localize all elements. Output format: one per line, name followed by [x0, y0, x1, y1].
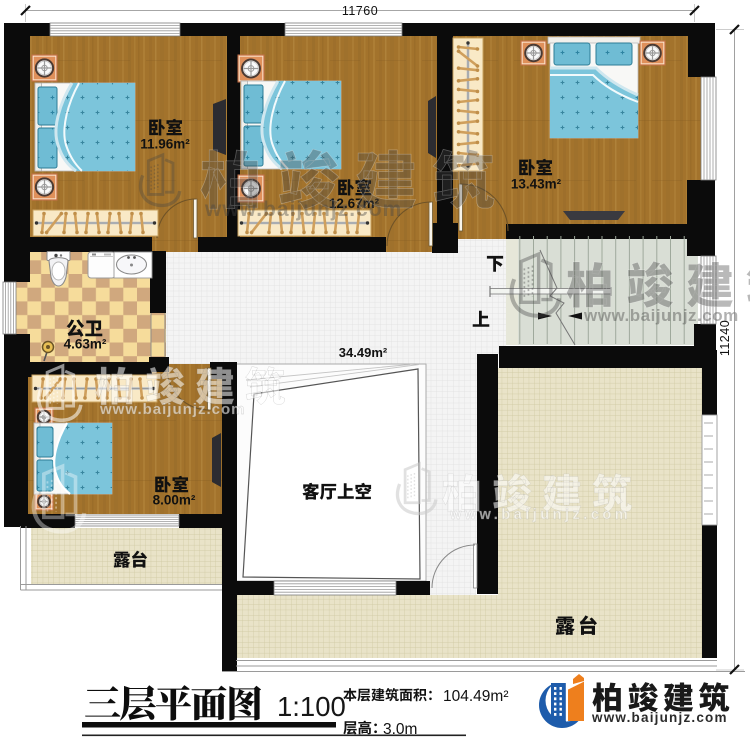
- svg-text:1:100: 1:100: [277, 691, 346, 722]
- svg-text:www.baijunjz.com: www.baijunjz.com: [591, 710, 728, 725]
- svg-text:www.baijunjz.com: www.baijunjz.com: [449, 507, 631, 523]
- svg-text:11760: 11760: [342, 4, 378, 18]
- svg-text:8.00m²: 8.00m²: [153, 493, 196, 508]
- svg-text:www.baijunjz.com: www.baijunjz.com: [99, 401, 245, 418]
- svg-text:www.baijunjz.com: www.baijunjz.com: [204, 198, 402, 221]
- svg-text:11240: 11240: [718, 320, 732, 356]
- svg-text:13.43m²: 13.43m²: [511, 177, 562, 192]
- svg-text:34.49m²: 34.49m²: [339, 345, 388, 360]
- svg-text:www.baijunjz.com: www.baijunjz.com: [583, 306, 739, 325]
- svg-text:4.63m²: 4.63m²: [64, 337, 107, 352]
- svg-text:104.49m²: 104.49m²: [443, 688, 508, 705]
- svg-text:11.96m²: 11.96m²: [140, 137, 190, 152]
